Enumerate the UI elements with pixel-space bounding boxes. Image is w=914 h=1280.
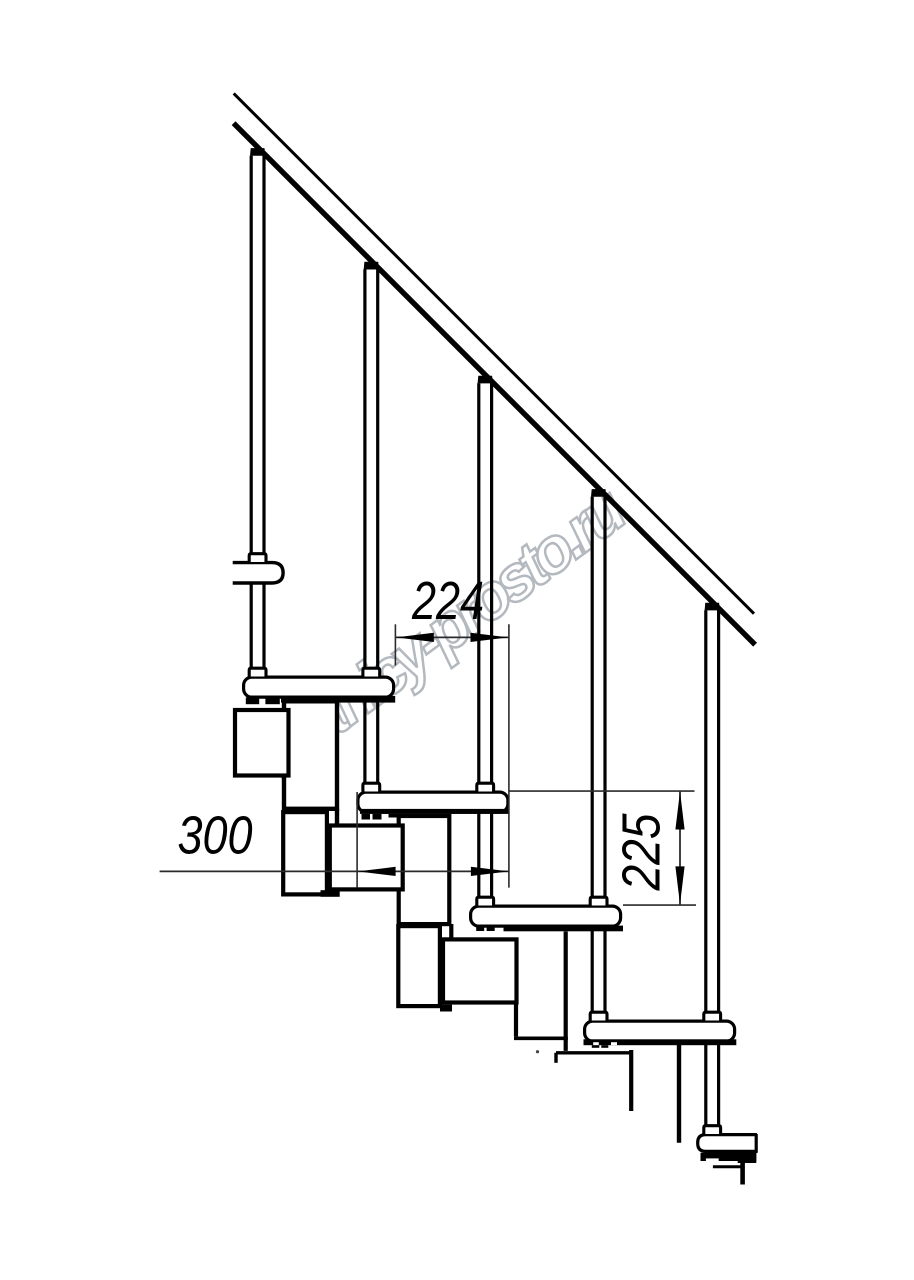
svg-text:224: 224 <box>411 571 484 631</box>
svg-text:300: 300 <box>178 806 253 866</box>
svg-text:225: 225 <box>612 813 672 892</box>
